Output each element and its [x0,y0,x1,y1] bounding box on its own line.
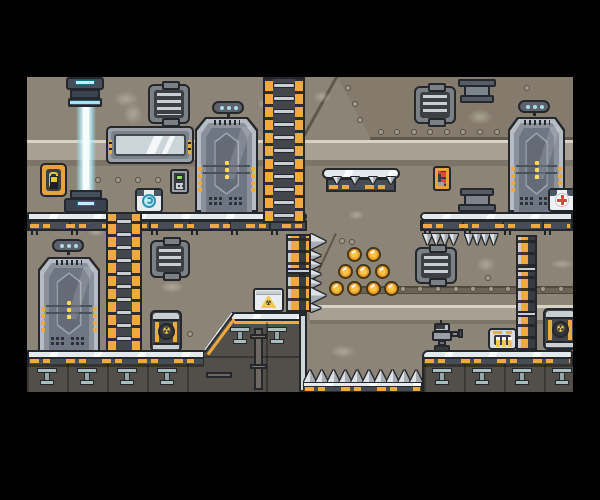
spike [311,288,326,303]
window-glass [114,134,186,156]
pipe-support [267,327,287,344]
coin[interactable] [375,264,390,279]
pipe-support [472,368,492,385]
spike [481,234,489,245]
ladder-rung [116,232,132,237]
pipe-machine-ceiling [458,79,496,103]
hazard-column-right [516,235,537,350]
ladder-rung [273,109,295,114]
spike [311,279,321,288]
window-accent [109,140,112,154]
rivet [378,129,384,135]
spike [351,370,363,382]
radioactive-barrel-left: ☢ [150,310,182,352]
battery-charger[interactable] [135,188,163,213]
wall-stain [476,257,496,272]
spike [339,370,351,382]
spike [398,370,410,382]
sign-dot [234,106,238,110]
spike [311,270,321,279]
ladder-rung [273,213,295,218]
energy-beam-core [83,105,89,193]
rivet [558,286,564,292]
keypad-buttons [176,183,183,189]
pit-floor [303,382,422,392]
rivet [352,101,358,107]
sign-dot [540,105,544,109]
sign-dot [220,106,224,110]
ladder-rail [132,214,140,351]
rivet [187,331,193,337]
spike [410,370,422,382]
spike [311,234,326,249]
column-divider [516,266,537,272]
vent-grille-icon [156,246,184,272]
pipe-support [157,368,177,385]
panel-edge-diagonal [300,77,338,141]
rivet [411,129,417,135]
spike [311,251,321,260]
pipe-support [552,368,572,385]
spike [369,177,377,184]
rivet [427,129,433,135]
vent-grille-icon [421,253,451,278]
energy-coil-icon [146,197,153,204]
spike [333,177,341,184]
rivet [345,85,351,91]
keypad-screen [176,175,183,180]
rivet [155,177,161,183]
game-viewport[interactable]: ☢ ☢ ☢ [27,77,573,392]
wall-window [106,126,194,164]
ladder-rung [273,148,295,153]
spike [465,234,473,245]
ladder-rung [116,258,132,263]
coin[interactable] [366,247,381,262]
pipe-machine-floor [458,188,496,212]
wall-stain [330,345,356,358]
wall-stain [348,210,365,220]
coin[interactable] [347,247,362,262]
ladder-rung [273,187,295,192]
radiation-glyph: ☢ [265,299,271,307]
ladder-rung [116,310,132,315]
coin[interactable] [347,281,362,296]
ladder-rung [116,271,132,276]
radiation-glyph: ☢ [162,326,171,337]
air-vent-3 [415,247,457,284]
spike [304,370,316,382]
ladder-rail [265,79,273,221]
wall-stain [160,281,184,293]
spike [375,370,387,382]
ladder-rung [116,336,132,341]
console-cell [502,337,506,347]
ladder-rung [116,245,132,250]
spike [328,370,340,382]
rivet [417,286,423,292]
coin[interactable] [329,281,344,296]
vent-grille-icon [154,90,184,118]
base-lens [77,201,95,206]
hazard-column-left [286,234,311,312]
air-vent-1 [148,84,190,124]
pipe-support [77,368,97,385]
spike [423,234,432,245]
radiation-glyph: ☢ [556,324,565,335]
spike [432,234,441,245]
spike [473,234,481,245]
spike [440,234,449,245]
spike [311,304,321,312]
spike [387,370,399,382]
air-vent-2 [414,86,456,124]
platform-upper-right [420,212,573,235]
rivet [505,286,511,292]
ladder-rung [273,161,295,166]
raised-block [204,312,307,392]
ladder-rung [273,200,295,205]
door-sign-2 [518,100,550,113]
coin[interactable] [366,281,381,296]
robot [432,323,463,352]
rivet [460,129,466,135]
rivet [540,286,546,292]
ladder-2[interactable] [106,212,142,353]
wall-stain [550,259,573,269]
rivet [357,117,363,123]
spike [449,234,458,245]
wall-stain [123,103,143,125]
wall-stain [313,91,331,103]
radiation-warning-icon: ☢ [261,295,277,308]
rivet [470,286,476,292]
dispenser-console[interactable] [488,328,517,350]
air-vent-4 [150,240,190,278]
spike [316,370,328,382]
ladder-rung [273,83,295,88]
lever [438,182,444,186]
teleporter-base[interactable] [64,190,108,213]
game-window: ☢ ☢ ☢ [0,0,600,500]
coin[interactable] [384,281,399,296]
coin[interactable] [356,264,371,279]
pipe-support [512,368,532,385]
rivet [444,129,450,135]
teleporter-emitter[interactable] [66,77,104,107]
robot-visor [436,325,445,329]
sign-dot [67,244,71,248]
rivet [494,129,500,135]
rivet [453,286,459,292]
ladder-rung [116,284,132,289]
rivet [524,85,530,91]
door-sign-1 [212,101,244,114]
window-accent [188,140,191,154]
ladder-rung [116,297,132,302]
sign-dot [227,106,231,110]
wall-stain [467,109,493,125]
wall-switch[interactable] [40,163,67,197]
rivet [394,129,400,135]
status-led [438,171,441,174]
emitter-lens [75,80,95,85]
ladder-rung [116,219,132,224]
red-button [441,172,446,177]
ladder-rung [273,135,295,140]
pipe-support [37,368,57,385]
spike [387,177,395,184]
spike [351,177,359,184]
coin[interactable] [338,264,353,279]
rivet [349,239,355,245]
ladder-rung [116,323,132,328]
ladder-1[interactable] [263,77,305,223]
control-panel-red[interactable] [433,166,451,191]
spike [311,260,321,269]
door-bottom-left[interactable] [38,257,100,352]
console-cell [496,337,500,347]
sign-dot [526,105,530,109]
spike [490,234,498,245]
pipe-support [230,327,250,344]
hazard-crate[interactable]: ☢ [253,288,284,312]
door-sign-3 [52,239,84,252]
column-divider [286,268,311,274]
radioactive-barrel-right: ☢ [543,308,573,350]
radiation-symbol-icon: ☢ [158,323,175,340]
rivet [477,129,483,135]
column-divider [516,311,537,317]
vent-grille-icon [420,92,450,118]
rivet [115,177,121,183]
rivet [339,238,345,244]
pipe-support [117,368,137,385]
medkit[interactable] [548,188,573,212]
rivet [135,177,141,183]
ladder-rail [108,214,116,351]
rivet [485,275,491,281]
spike [363,370,375,382]
console-cell [508,337,512,347]
ladder-rung [273,174,295,179]
door-top-left[interactable] [195,117,258,212]
ladder-rung [273,122,295,127]
sign-dot [533,105,537,109]
rivet [400,286,406,292]
rivet [488,286,494,292]
ladder-rail [295,79,303,221]
radiation-symbol-icon: ☢ [552,321,569,338]
keypad[interactable] [170,169,189,194]
ladder-rung [273,96,295,101]
sign-dot [60,244,64,248]
sign-dot [74,244,78,248]
pipe-support [432,368,452,385]
